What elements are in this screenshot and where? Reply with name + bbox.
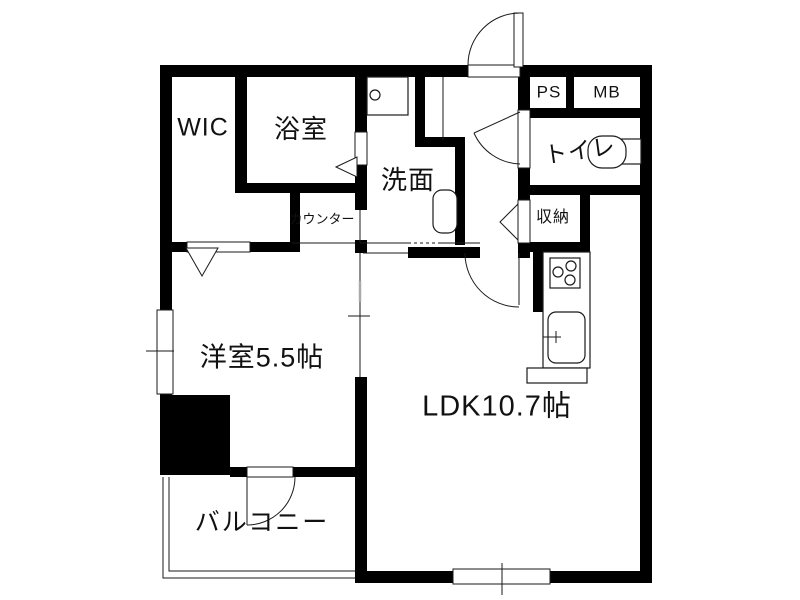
floor-plan: WIC 浴室 洗面 カウンター PS MB トイレ 収納 洋室5.5帖 LDK1… [0,0,800,600]
wall-right [640,65,652,583]
bath-folding-door-icon [336,157,357,177]
structural-pillar [160,395,230,475]
wall-corridor-right-a [518,77,530,112]
ldk-door-arc [465,253,519,307]
wall-bottom-left [355,571,455,583]
wall-washroom-bottom [408,247,480,258]
wic-folding-door-icon [186,248,218,276]
kitchen-counter-end [527,368,587,383]
room-label-western-room: 洋室5.5帖 [200,345,325,372]
room-label-meter-box: MB [593,84,621,101]
room-label-wic: WIC [177,116,229,141]
room-label-bathroom: 浴室 [274,116,328,142]
wall-top-right [520,65,652,77]
stove-burner-1 [566,261,576,271]
wall-top-left [160,65,468,77]
stove-burner-3 [565,275,575,285]
thin-boundaries [163,77,480,578]
entrance-opening [468,65,520,77]
wall-partition-lower [355,377,367,583]
wall-partition-stub [355,240,367,253]
wall-ps-mb-divider [566,77,574,110]
toilet-door-opening [518,110,530,168]
wall-entry-left [415,77,425,137]
toilet-door-leaf [474,112,520,133]
west-window [157,310,173,394]
stove-burner-2 [553,267,563,277]
wall-balcony-top-b [293,467,355,477]
wall-bath-bottom [235,183,367,193]
wall-corridor-left [455,137,465,245]
storage-folding-door-icon [500,204,518,240]
entrance-door-arc [468,13,520,65]
wall-toilet-top [518,108,652,118]
balcony-door-opening [247,467,293,477]
wall-balcony-top-a [230,467,247,477]
wall-corridor-right-b [518,166,530,202]
wall-wic-bottom-b [250,242,292,252]
floor-plan-linework [0,0,800,600]
wall-bottom-right [548,571,652,583]
wall-wic-bath [235,77,247,193]
toilet-door-arc [474,133,520,164]
room-label-ldk: LDK10.7帖 [422,393,572,422]
wall-wic-bottom-a [160,242,187,252]
room-label-counter: カウンター [289,213,354,226]
wall-toilet-bottom [518,185,652,195]
washing-machine-drain [370,90,380,100]
room-label-storage: 収納 [536,210,570,226]
room-label-washroom: 洗面 [381,167,435,193]
room-label-pipe-space: PS [537,84,562,101]
wall-storage-right [580,195,590,242]
room-label-balcony: バルコニー [195,511,330,536]
wall-bath-right-upper [355,77,367,134]
storage-door-opening [518,200,530,243]
wash-basin-icon [433,190,457,233]
entrance-door-leaf [514,13,523,67]
